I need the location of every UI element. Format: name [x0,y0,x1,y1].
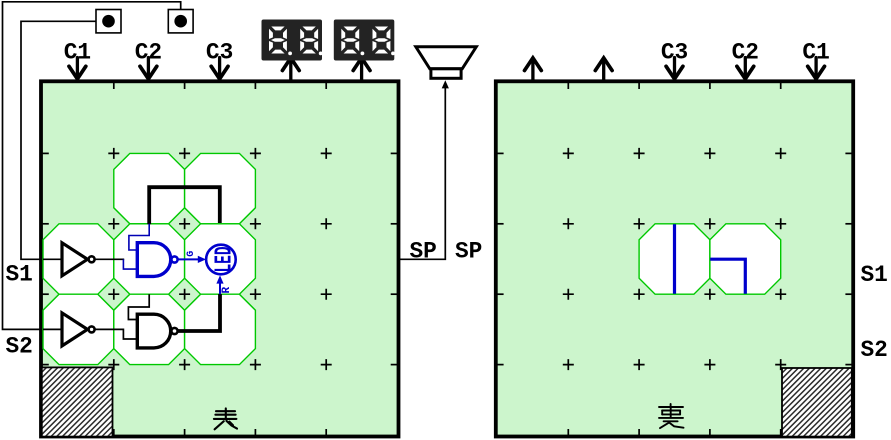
svg-text:C3: C3 [661,39,688,65]
svg-text:C2: C2 [135,39,162,65]
svg-text:LED: LED [211,246,238,272]
svg-text:SP: SP [455,239,482,265]
svg-text:S2: S2 [6,333,33,359]
svg-text:S2: S2 [861,337,888,363]
svg-text:C2: C2 [732,39,759,65]
svg-text:SP: SP [410,239,437,265]
svg-text:C3: C3 [206,39,233,65]
svg-text:C1: C1 [802,39,829,65]
svg-text:R: R [221,287,233,294]
svg-text:C1: C1 [64,39,91,65]
svg-text:S1: S1 [6,261,33,287]
svg-text:S1: S1 [861,262,888,288]
svg-text:G: G [186,251,197,257]
